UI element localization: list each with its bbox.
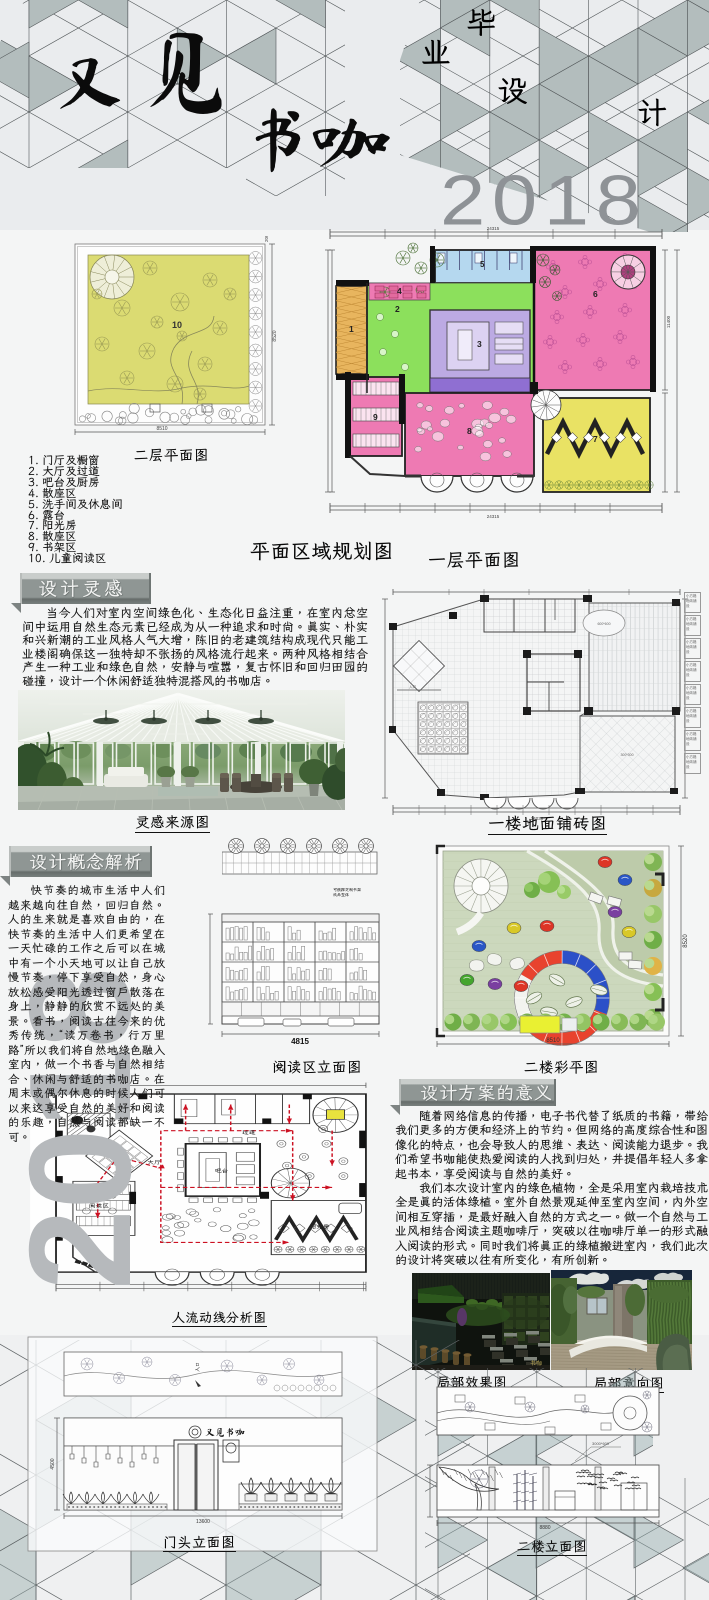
- svg-text:3000*600: 3000*600: [592, 1441, 610, 1446]
- svg-text:又见书咖: 又见书咖: [205, 1427, 245, 1438]
- svg-text:13600: 13600: [196, 1519, 210, 1525]
- svg-text:4500: 4500: [50, 1458, 56, 1469]
- svg-text:8880: 8880: [539, 1525, 550, 1531]
- svg-text:入口: 入口: [195, 1362, 201, 1372]
